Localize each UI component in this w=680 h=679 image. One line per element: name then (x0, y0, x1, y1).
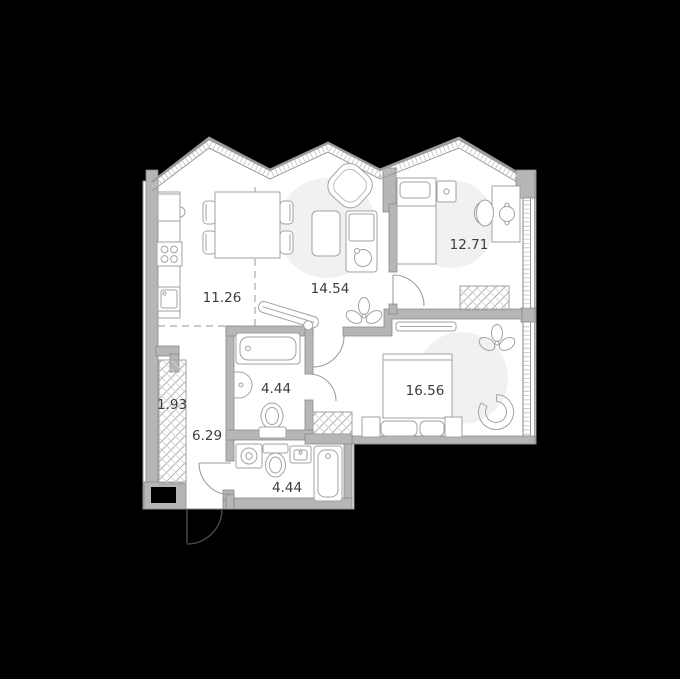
room-label-closet: 1.93 (157, 397, 187, 413)
nightstand-icon (437, 181, 456, 202)
nightstand-icon (445, 417, 462, 437)
bathtub-icon (314, 446, 342, 501)
desk-icon (492, 186, 520, 242)
washing-machine-icon (236, 444, 262, 468)
room-label-living: 14.54 (311, 281, 350, 297)
room-label-kitchen-dining: 11.26 (203, 290, 242, 306)
room-label-master-bedroom: 16.56 (406, 383, 445, 399)
room-label-bedroom: 12.71 (450, 237, 489, 253)
dining-table (215, 192, 280, 258)
nightstand-icon (362, 417, 380, 437)
chair-icon (280, 231, 293, 254)
sofa-icon (346, 211, 377, 272)
bathtub-icon (236, 333, 300, 364)
washbasin-icon (290, 446, 311, 463)
room-label-hallway: 6.29 (192, 428, 222, 444)
room-label-bathroom: 4.44 (261, 381, 291, 397)
wardrobe-icon (460, 286, 509, 310)
entrance-door (187, 509, 222, 544)
coffee-table (312, 211, 340, 256)
floor-plan-canvas: 11.26 14.54 12.71 16.56 4.44 6.29 1.93 4… (0, 0, 680, 679)
tv-icon (396, 322, 456, 331)
shaft-icon (151, 487, 176, 503)
drawer-icon (381, 421, 417, 436)
wardrobe-icon (313, 412, 352, 434)
wardrobe-icon (159, 360, 186, 484)
kitchen-sink-icon (158, 287, 180, 311)
chair-icon (203, 231, 216, 254)
stove-icon (157, 242, 182, 266)
chair-icon (203, 201, 216, 224)
bed-icon (397, 178, 436, 264)
room-label-wc: 4.44 (272, 480, 302, 496)
chair-icon (280, 201, 293, 224)
drawer-icon (420, 421, 444, 436)
floor-plan: 11.26 14.54 12.71 16.56 4.44 6.29 1.93 4… (0, 0, 680, 679)
